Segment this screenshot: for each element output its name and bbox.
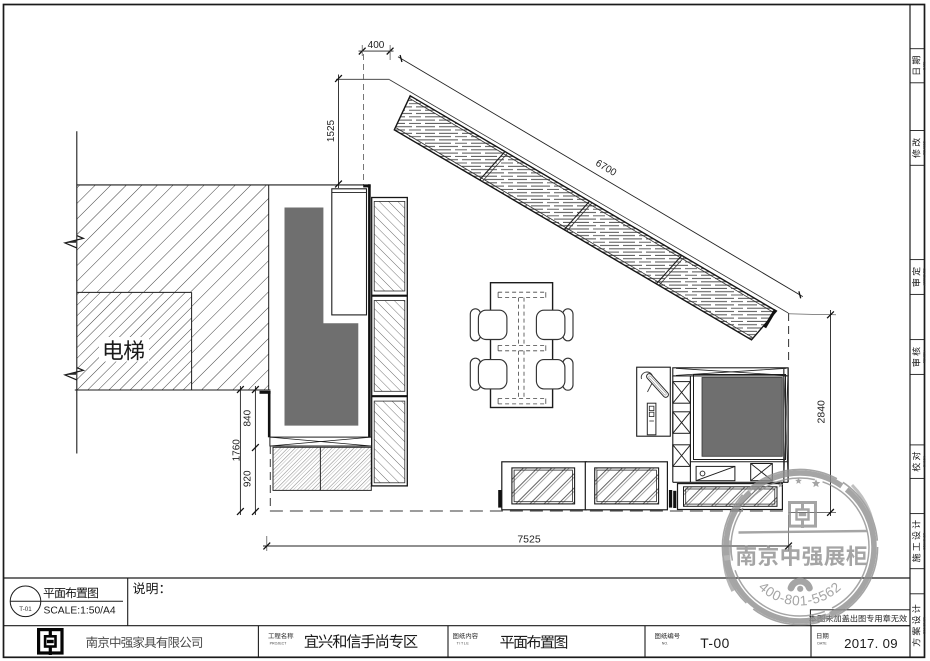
svg-text:NO.: NO.: [662, 642, 668, 646]
svg-text:2840: 2840: [815, 400, 827, 424]
svg-text:REVIEW: REVIEW: [922, 351, 926, 364]
svg-text:2017. 09: 2017. 09: [844, 636, 898, 651]
svg-text:T-00: T-00: [700, 636, 730, 651]
svg-text:DESIGNER: DESIGNER: [922, 617, 926, 634]
svg-text:PROJECT: PROJECT: [270, 642, 288, 646]
svg-text:DATE: DATE: [817, 642, 827, 646]
svg-text:400: 400: [368, 40, 385, 51]
svg-text:7525: 7525: [517, 534, 541, 546]
svg-text:DESIGNER: DESIGNER: [922, 532, 926, 549]
svg-text:1760: 1760: [231, 439, 242, 462]
svg-text:1525: 1525: [326, 119, 337, 142]
svg-text:TITLE: TITLE: [457, 642, 470, 646]
svg-text:DATE: DATE: [922, 62, 926, 70]
svg-text:REVISED: REVISED: [922, 140, 926, 155]
svg-text:840: 840: [242, 409, 253, 426]
svg-text:CHECK: CHECK: [922, 455, 926, 467]
svg-text:920: 920: [242, 470, 253, 487]
svg-text:APPROVED: APPROVED: [922, 267, 926, 285]
svg-text:SCALE:1:50/A4: SCALE:1:50/A4: [44, 605, 116, 616]
svg-text:T-01: T-01: [19, 606, 32, 613]
